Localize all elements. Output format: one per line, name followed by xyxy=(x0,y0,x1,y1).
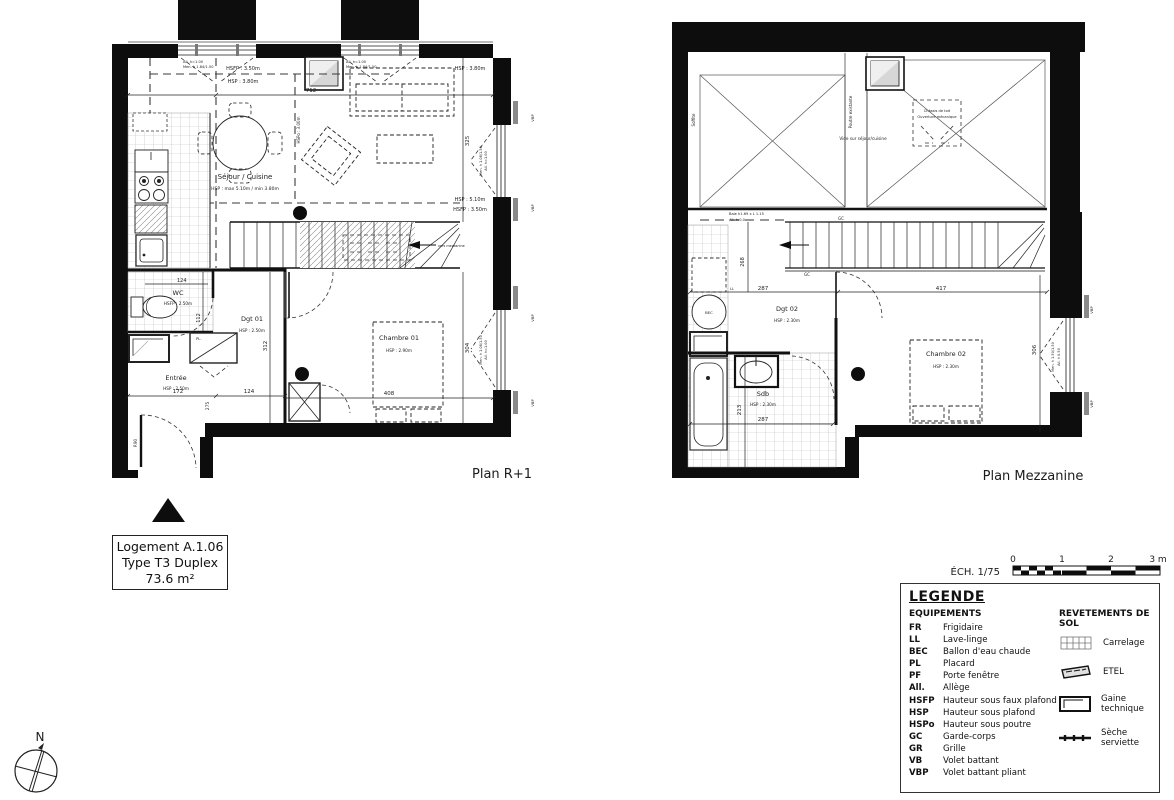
mz-label-ll: LL xyxy=(730,287,734,291)
legend-item: PLPlacard xyxy=(909,658,1059,670)
r1-upper-floor-blocks xyxy=(128,0,493,42)
mz-room-dgt02-note: HSP : 2.30m xyxy=(774,318,800,323)
r1-dim-124-top: 124 xyxy=(177,278,187,284)
mz-dim-287-bottom: 287 xyxy=(758,417,769,423)
legend-item: VBPVolet battant pliant xyxy=(909,767,1059,779)
legend-label: Ballon d'eau chaude xyxy=(943,646,1031,658)
legend-floor-item: Gaine technique xyxy=(1059,694,1151,714)
legend-abbr: PL xyxy=(909,658,943,670)
legend-abbr: GC xyxy=(909,731,943,743)
r1-wc: WC HSFP : 2.50m xyxy=(128,270,213,336)
washer-symbol xyxy=(692,258,726,292)
legend-label: Allège xyxy=(943,682,970,694)
r1-note-hsfp-right: HSFP : 3.50m xyxy=(453,207,487,213)
legend-abbr: PF xyxy=(909,670,943,682)
r1-window1-note-men: Men. h 1.84/1.50 xyxy=(183,65,214,69)
r1-shutter-label-vbp-1: VBP xyxy=(530,114,535,122)
legend-item: GCGarde-corps xyxy=(909,731,1059,743)
legend-floor-label: Sèche serviette xyxy=(1101,728,1151,748)
legend-label: Volet battant pliant xyxy=(943,767,1026,779)
plan-mezzanine: Soffite Poutre existante Vide sur séjour… xyxy=(672,22,1094,484)
r1-placard: PL. xyxy=(190,333,237,377)
legend-equipment-header: EQUIPEMENTS xyxy=(909,609,1059,619)
r1-dim-275: 275 xyxy=(205,402,211,411)
r1-chambre-placard xyxy=(289,383,350,421)
r1-shutter-label-vbp-2: VBP xyxy=(530,204,535,212)
r1-note-hspo: HSPo : 3.00m xyxy=(296,116,301,143)
mz-note-vide: Vide sur séjour/cuisine xyxy=(839,136,887,141)
r1-room-wc-note: HSFP : 2.50m xyxy=(164,301,192,306)
legend-label: Hauteur sous poutre xyxy=(943,719,1031,731)
r1-entrance-door: P.90 xyxy=(133,415,196,468)
r1-dim-112: 112 xyxy=(196,313,202,323)
mz-note-soffite: Soffite xyxy=(691,113,696,126)
r1-dim-408: 408 xyxy=(384,391,395,397)
r1-window2-note-allege: All. h=1.00 xyxy=(346,60,367,64)
r1-note-hsp-topright: HSP : 3.80m xyxy=(455,66,486,72)
mz-dim-287-top: 287 xyxy=(758,286,769,292)
r1-note-hsp-top: HSP : 3.80m xyxy=(228,79,259,85)
mz-note-gc-1: GC xyxy=(838,216,844,221)
mz-room-chambre02: Chambre 02 xyxy=(926,350,966,358)
r1-coffee-table xyxy=(377,135,433,163)
mz-roof-window-symbol xyxy=(913,100,961,146)
carrelage-icon xyxy=(1059,636,1093,650)
r1-dim-712: 712 xyxy=(306,88,317,94)
r1-kitchen xyxy=(128,113,210,268)
mz-shutter-label-vbp-2: VBP xyxy=(1089,400,1094,408)
r1-east-window2-note-men: Men. h 1.08/1.50 xyxy=(479,335,483,365)
legend-title: LEGENDE xyxy=(909,589,1151,605)
r1-caption: Plan R+1 xyxy=(472,467,532,482)
r1-note-hsp-right: HSP : 5.10m xyxy=(455,197,486,203)
r1-room-wc: WC xyxy=(173,289,184,297)
seche-serviette-icon xyxy=(1059,733,1091,743)
mz-dim-306: 306 xyxy=(1032,344,1038,355)
legend-item: HSPoHauteur sous poutre xyxy=(909,719,1059,731)
legend-abbr: HSFP xyxy=(909,695,943,707)
legend-item: LLLave-linge xyxy=(909,634,1059,646)
north-compass: N xyxy=(15,730,57,792)
mz-section-dot xyxy=(851,367,865,381)
r1-shutter-label-vbp-4: VBP xyxy=(530,399,535,407)
r1-dim-304: 304 xyxy=(465,342,471,353)
r1-east-window1-note-men: Men. h 1.08/1.50 xyxy=(479,146,483,176)
mz-room-chambre02-note: HSP : 2.30m xyxy=(933,364,959,369)
mz-note-gc-2: GC xyxy=(804,272,810,277)
r1-window1-note-allege: All. h=1.00 xyxy=(183,60,204,64)
r1-east-window1-note-allege: All. h=1.00 xyxy=(484,151,488,171)
legend-label: Volet battant xyxy=(943,755,999,767)
r1-dim-325: 325 xyxy=(465,135,471,146)
legend-floor-column: REVETEMENTS DE SOL Carrelage ETEL Gaine … xyxy=(1059,609,1151,779)
r1-section-dot-2 xyxy=(295,367,309,381)
toilet-symbol xyxy=(131,296,177,318)
r1-room-sejour: Séjour / Cuisine xyxy=(218,173,273,181)
mz-note-poutre: Poutre existante xyxy=(848,95,853,128)
legend-abbr: LL xyxy=(909,634,943,646)
r1-shutter-label-vbp-3: VBP xyxy=(530,314,535,322)
mz-room-sdb-note: HSP : 2.30m xyxy=(750,402,776,407)
floor-plan-sheet: All. h=1.00 Men. h 1.84/1.50 All. h=1.00… xyxy=(0,0,1174,800)
mz-stairs: GC xyxy=(779,222,1045,277)
r1-door-label: P.90 xyxy=(133,438,138,447)
legend-label: Garde-corps xyxy=(943,731,996,743)
scale-tick-1: 1 xyxy=(1059,555,1065,565)
mz-room-sdb: Sdb xyxy=(757,390,769,398)
fridge-symbol xyxy=(133,113,167,131)
legend-item: HSPHauteur sous plafond xyxy=(909,707,1059,719)
legend-abbr: HSP xyxy=(909,707,943,719)
r1-armchair xyxy=(302,127,361,186)
etel-icon xyxy=(1059,664,1093,680)
mz-caption: Plan Mezzanine xyxy=(983,469,1084,484)
r1-note-hsfp-top: HSFP : 3.50m xyxy=(226,66,260,72)
title-line-3: 73.6 m² xyxy=(146,571,195,587)
legend-abbr: GR xyxy=(909,743,943,755)
legend-item: VBVolet battant xyxy=(909,755,1059,767)
legend-floor-item: Sèche serviette xyxy=(1059,728,1151,748)
title-box: Logement A.1.06 Type T3 Duplex 73.6 m² xyxy=(112,535,228,590)
title-line-1: Logement A.1.06 xyxy=(117,539,224,555)
legend-item: GRGrille xyxy=(909,743,1059,755)
drainer-symbol xyxy=(135,205,167,233)
legend-abbr: BEC xyxy=(909,646,943,658)
r1-door-arc-1 xyxy=(287,272,333,318)
r1-room-dgt01-note: HSP : 2.50m xyxy=(239,328,265,333)
washbasin-symbol xyxy=(735,356,778,387)
mz-dim-213: 213 xyxy=(737,404,743,415)
legend-box: LEGENDE EQUIPEMENTS FRFrigidaire LLLave-… xyxy=(900,583,1160,793)
legend-label: Frigidaire xyxy=(943,622,983,634)
compass-north-label: N xyxy=(36,730,45,744)
mz-dim-268: 268 xyxy=(740,257,746,267)
plan-r1: All. h=1.00 Men. h 1.84/1.50 All. h=1.00… xyxy=(112,0,535,522)
r1-sofa xyxy=(350,68,454,116)
mz-label-bec: BEC xyxy=(705,310,713,315)
r1-gaine-technique xyxy=(129,335,169,362)
mz-note-baie-2: All. h:0.0 xyxy=(729,218,746,222)
legend-equipment-column: EQUIPEMENTS FRFrigidaire LLLave-linge BE… xyxy=(909,609,1059,779)
legend-item: PFPorte fenêtre xyxy=(909,670,1059,682)
mz-door-arc-1 xyxy=(836,272,882,318)
mz-shutter-label-vbp-1: VBP xyxy=(1089,306,1094,314)
mz-note-chassis-2: Ouverture mécanique xyxy=(917,115,957,119)
legend-label: Porte fenêtre xyxy=(943,670,999,682)
legend-item: BECBallon d'eau chaude xyxy=(909,646,1059,658)
legend-floor-item: ETEL xyxy=(1059,664,1151,680)
legend-item: HSFPHauteur sous faux plafond xyxy=(909,695,1059,707)
title-line-2: Type T3 Duplex xyxy=(122,555,218,571)
mz-room-dgt02: Dgt 02 xyxy=(776,305,798,313)
legend-item: FRFrigidaire xyxy=(909,622,1059,634)
r1-section-dot-1 xyxy=(293,206,307,220)
r1-placard-label: PL. xyxy=(196,336,202,341)
r1-east-window2-note-allege: All. h=1.00 xyxy=(484,340,488,360)
legend-label: Hauteur sous faux plafond xyxy=(943,695,1057,707)
legend-label: Placard xyxy=(943,658,975,670)
r1-dim-124-bottom: 124 xyxy=(244,389,255,395)
scale-tick-2: 2 xyxy=(1108,555,1114,565)
r1-room-sejour-note: HSP : max 5.10m / min 3.80m xyxy=(211,186,279,192)
scale-tick-3: 3 m xyxy=(1149,555,1166,565)
legend-abbr: VB xyxy=(909,755,943,767)
legend-label: Hauteur sous plafond xyxy=(943,707,1035,719)
scale-tick-0: 0 xyxy=(1010,555,1016,565)
r1-room-dgt01: Dgt 01 xyxy=(241,315,263,323)
r1-room-entree: Entrée xyxy=(165,374,186,382)
legend-floor-label: Carrelage xyxy=(1103,638,1145,648)
legend-floor-header: REVETEMENTS DE SOL xyxy=(1059,609,1151,629)
r1-stairs-note: vers mezzanine xyxy=(438,244,465,248)
legend-label: Lave-linge xyxy=(943,634,988,646)
mz-stairs-direction-arrow xyxy=(779,241,791,249)
scale-label: ÉCH. 1/75 xyxy=(951,565,1000,578)
mz-window-note-allege: All. h 0.50 xyxy=(1057,348,1061,366)
scale-bar: ÉCH. 1/75 0 1 2 3 m xyxy=(951,555,1167,578)
legend-floor-label: Gaine technique xyxy=(1101,694,1151,714)
legend-floor-item: Carrelage xyxy=(1059,636,1151,650)
bathtub-symbol xyxy=(690,358,727,450)
mz-dim-417: 417 xyxy=(936,286,947,292)
legend-abbr: All. xyxy=(909,682,943,694)
mz-window-note-men: Men. h 1.50/1.50 xyxy=(1051,342,1055,372)
r1-room-chambre01: Chambre 01 xyxy=(379,334,419,342)
legend-abbr: FR xyxy=(909,622,943,634)
water-heater-symbol: BEC xyxy=(692,295,726,329)
r1-dim-312: 312 xyxy=(263,341,269,352)
mz-skylight xyxy=(866,57,904,90)
legend-floor-label: ETEL xyxy=(1103,667,1124,677)
legend-item: All.Allège xyxy=(909,682,1059,694)
entrance-triangle-marker xyxy=(152,498,185,522)
mz-note-chassis-1: Châssis de toit xyxy=(924,109,951,113)
legend-abbr: VBP xyxy=(909,767,943,779)
legend-label: Grille xyxy=(943,743,966,755)
legend-abbr: HSPo xyxy=(909,719,943,731)
r1-room-chambre01-note: HSP : 2.90m xyxy=(386,348,412,353)
r1-dining-table xyxy=(198,103,282,183)
gaine-technique-icon xyxy=(1059,696,1091,712)
r1-dim-172: 172 xyxy=(173,389,184,395)
mz-note-baie-1: Baie h1.69 x L 1.15 xyxy=(729,212,764,216)
